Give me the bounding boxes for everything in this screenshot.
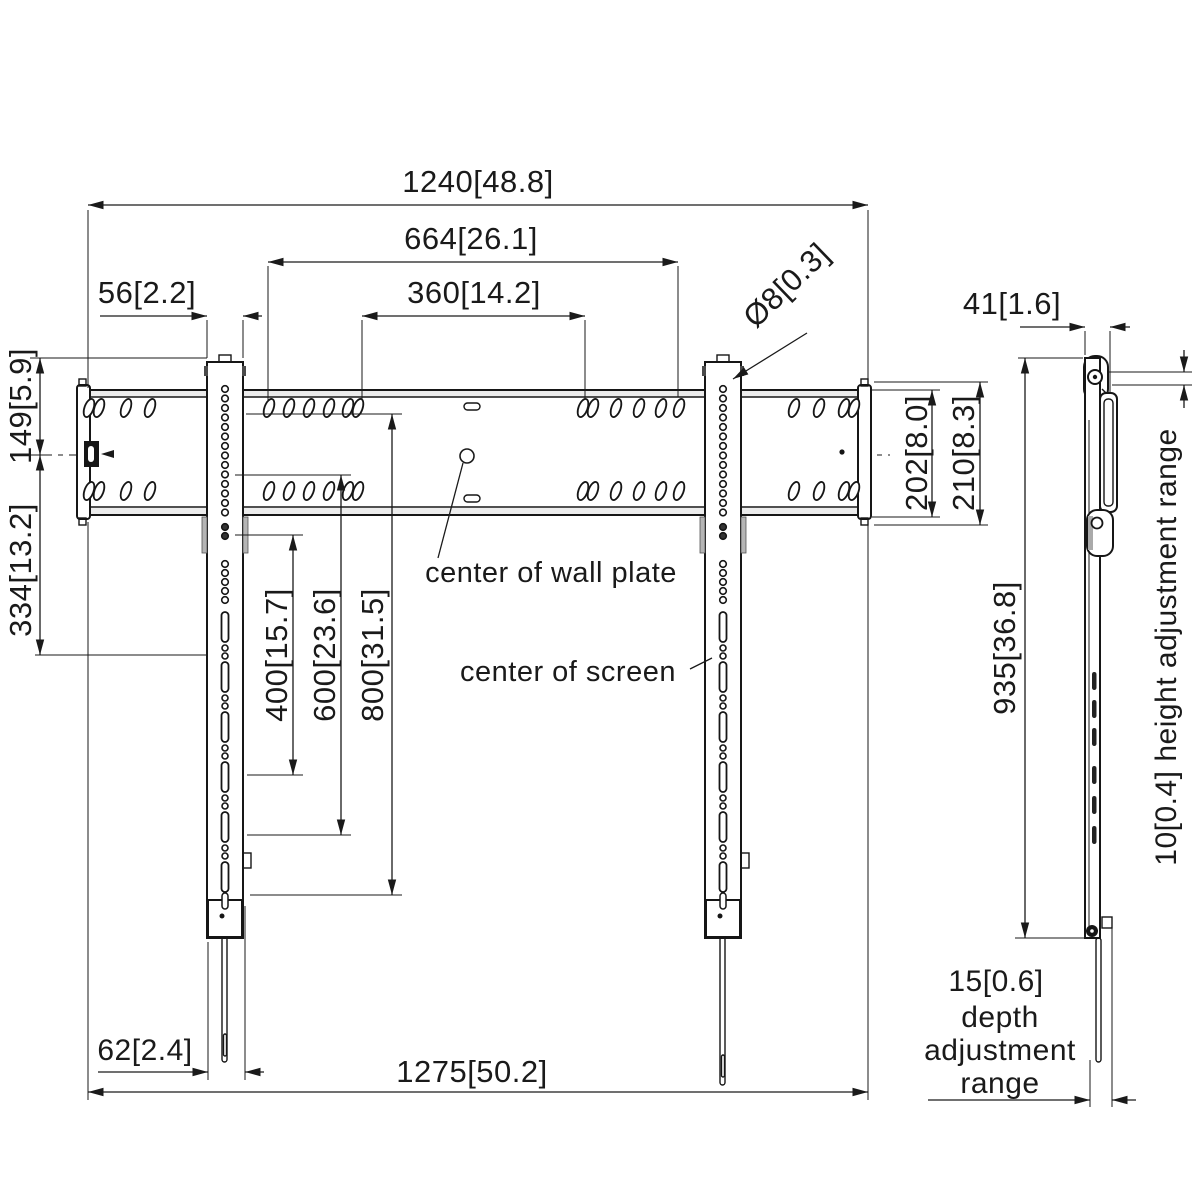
rail-hole xyxy=(222,561,229,568)
rail-hole xyxy=(222,490,229,497)
dim-strap-width: 62[2.4] xyxy=(97,1034,192,1067)
rail-hole xyxy=(222,579,229,586)
rail-hole xyxy=(222,588,229,595)
rail-hole xyxy=(720,745,726,751)
side-plate-channel xyxy=(1100,393,1117,512)
rail-hole xyxy=(720,703,726,709)
dim-vesa-400: 400[15.7] xyxy=(259,588,294,722)
side-strap xyxy=(1096,938,1101,1062)
dimension-vesa-400: 400[15.7] xyxy=(235,535,303,775)
rail-hole xyxy=(222,386,229,393)
side-bottom-tab xyxy=(1102,917,1112,928)
note-depth-word1: depth xyxy=(961,1001,1039,1034)
dim-height: 935[36.8] xyxy=(987,581,1022,715)
rail-hole xyxy=(222,570,229,577)
rail-hole xyxy=(222,803,228,809)
rail-hole xyxy=(222,597,229,604)
dim-rail-top-to-center: 149[5.9] xyxy=(3,348,38,464)
rail-hole xyxy=(222,424,229,431)
side-slot-dash xyxy=(1092,672,1097,690)
rail-hole xyxy=(222,433,229,440)
rail-slot xyxy=(720,893,726,909)
rail-hole xyxy=(720,561,727,568)
note-center-of-screen: center of screen xyxy=(460,656,676,688)
rail-hole xyxy=(222,443,229,450)
wall-plate-top-flange xyxy=(89,391,867,397)
rail-slot xyxy=(720,662,727,692)
dimension-height: 935[36.8] xyxy=(987,358,1090,938)
dim-outer-hole-span: 664[26.1] xyxy=(404,221,538,256)
dim-overall-width: 1275[50.2] xyxy=(396,1054,548,1089)
wall-plate xyxy=(88,390,868,515)
rail-hole xyxy=(720,524,727,531)
rail-hole xyxy=(720,803,726,809)
rail-hole xyxy=(720,395,727,402)
side-slot-dash xyxy=(1092,826,1097,844)
rail-hole xyxy=(222,471,229,478)
rail-hole xyxy=(720,753,726,759)
rail-hole xyxy=(222,795,228,801)
wall-plate-bottom-flange xyxy=(89,508,867,514)
right-rail xyxy=(700,355,749,1085)
dimension-depth-adjustment-range: 15[0.6] depth adjustment range xyxy=(924,928,1136,1107)
rail-hole xyxy=(720,695,726,701)
rail-hole xyxy=(222,703,228,709)
side-slot-dash xyxy=(1092,796,1097,814)
rail-hole xyxy=(720,443,727,450)
dim-hole-diameter: Ø8[0.3] xyxy=(736,236,836,334)
rail-hole xyxy=(718,914,723,919)
rail-hole xyxy=(720,405,727,412)
dimension-outer-hole-span: 664[26.1] xyxy=(268,221,678,402)
rail-slot xyxy=(222,662,229,692)
note-center-of-wall-plate: center of wall plate xyxy=(425,557,677,589)
rail-hole xyxy=(720,471,727,478)
rail-slot xyxy=(222,893,228,909)
wall-plate-right-endcap xyxy=(858,379,871,525)
dim-plate-height: 202[8.0] xyxy=(899,395,934,511)
rail-slot xyxy=(720,812,727,842)
rail-hole xyxy=(720,570,727,577)
rail-hole xyxy=(222,414,229,421)
rail-slot xyxy=(222,612,229,642)
rail-slot xyxy=(720,712,727,742)
dimension-height-adjustment-range: 10[0.4] height adjustment range xyxy=(1108,350,1192,866)
dim-rail-width: 56[2.2] xyxy=(98,275,196,310)
rail-slot xyxy=(720,762,727,792)
left-rail xyxy=(202,355,251,1062)
rail-slot xyxy=(222,812,229,842)
rail-hole xyxy=(222,753,228,759)
dim-vesa-800: 800[31.5] xyxy=(355,588,390,722)
rail-hole xyxy=(720,490,727,497)
rail-slot xyxy=(222,762,229,792)
rail-hole xyxy=(222,845,228,851)
rail-hole xyxy=(222,462,229,469)
side-latch-hook xyxy=(1087,510,1113,556)
dimension-hole-diameter: Ø8[0.3] xyxy=(733,236,836,379)
rail-hole xyxy=(222,481,229,488)
rail-hole xyxy=(720,795,726,801)
rail-hole xyxy=(222,509,229,516)
rail-hole xyxy=(720,452,727,459)
rail-hole xyxy=(720,500,727,507)
center-of-screen-note: center of screen xyxy=(460,656,712,688)
dim-inner-hole-span: 360[14.2] xyxy=(407,275,541,310)
rail-hole xyxy=(222,533,229,540)
dim-vesa-600: 600[23.6] xyxy=(307,588,342,722)
side-slot-dash xyxy=(1092,766,1097,784)
rail-hole xyxy=(720,433,727,440)
rail-hole xyxy=(222,405,229,412)
note-height-adjustment-range: 10[0.4] height adjustment range xyxy=(1150,428,1183,865)
rail-slot xyxy=(222,862,229,892)
rail-hole xyxy=(720,462,727,469)
rail-hole xyxy=(222,745,228,751)
rail-hole xyxy=(222,695,228,701)
side-slot-dash xyxy=(1092,728,1097,746)
dim-center-to-screen: 334[13.2] xyxy=(3,503,38,637)
rail-hole xyxy=(720,588,727,595)
dim-wall-plate-width: 1240[48.8] xyxy=(402,164,554,199)
dimension-plate-height: 202[8.0] xyxy=(872,390,940,517)
rail-slot xyxy=(720,862,727,892)
rail-hole xyxy=(720,386,727,393)
rail-slot xyxy=(222,712,229,742)
rail-hole xyxy=(220,914,225,919)
rail-slot xyxy=(720,612,727,642)
rail-hole xyxy=(720,481,727,488)
rail-hole xyxy=(720,509,727,516)
rail-hole xyxy=(222,500,229,507)
rail-hole xyxy=(720,424,727,431)
rail-hole xyxy=(720,845,726,851)
rail-hole xyxy=(720,533,727,540)
rail-hole xyxy=(720,645,726,651)
rail-hole xyxy=(720,579,727,586)
rail-hole xyxy=(222,452,229,459)
plate-pin-hole xyxy=(839,449,844,454)
rail-hole xyxy=(720,414,727,421)
rail-hole xyxy=(720,597,727,604)
rail-hole xyxy=(222,645,228,651)
front-view: 1240[48.8] 664[26.1] 360[14.2] 56[2.2] Ø… xyxy=(3,164,988,1100)
rail-hole xyxy=(222,653,228,659)
dimension-rail-width: 56[2.2] xyxy=(98,275,262,358)
dimension-inner-hole-span: 360[14.2] xyxy=(362,275,585,400)
rail-hole xyxy=(222,524,229,531)
wall-mount-technical-drawing: 1240[48.8] 664[26.1] 360[14.2] 56[2.2] Ø… xyxy=(0,0,1200,1200)
note-depth-adjustment-value: 15[0.6] xyxy=(948,965,1043,998)
note-depth-word2: adjustment xyxy=(924,1034,1076,1067)
note-depth-word3: range xyxy=(960,1067,1039,1100)
dim-plate-height-overall: 210[8.3] xyxy=(946,395,981,511)
side-slot-dash xyxy=(1092,700,1097,718)
rail-hole xyxy=(222,853,228,859)
dimension-overall-width: 1275[50.2] xyxy=(88,522,868,1100)
rail-hole xyxy=(720,853,726,859)
dim-depth: 41[1.6] xyxy=(963,286,1061,321)
rail-hole xyxy=(720,653,726,659)
rail-hole xyxy=(222,395,229,402)
